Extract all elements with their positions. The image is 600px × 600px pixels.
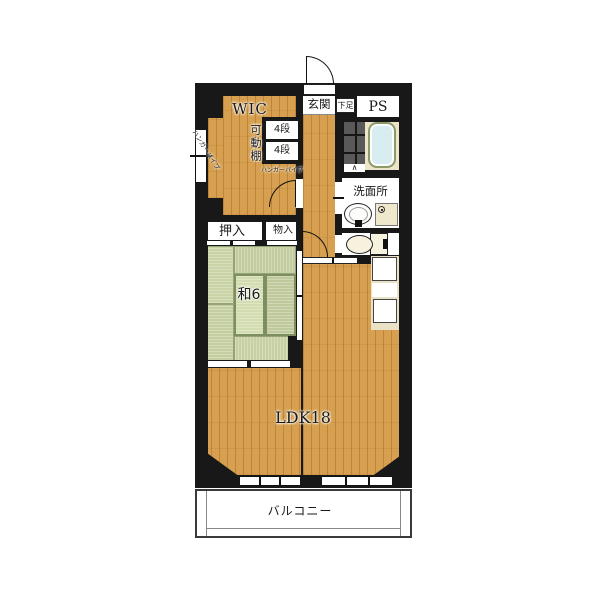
- balcony-label: バルコニー: [240, 503, 360, 519]
- basin-tap: [355, 220, 362, 227]
- bathtub: [368, 122, 396, 168]
- toilet-bowl: [346, 235, 373, 254]
- wall-corner-topleft: [195, 83, 223, 118]
- ps-label: PS: [357, 97, 399, 117]
- bath-folding-door: ∧: [344, 164, 365, 172]
- folding-door-icon: ∧: [352, 164, 358, 172]
- shoe-box-label: 下足: [336, 98, 355, 113]
- kitchen-unit-sink: [373, 299, 397, 323]
- shelf-tier-2: 4段: [266, 142, 298, 160]
- entrance-opening: [304, 84, 335, 95]
- genkan-label: 玄関: [303, 96, 335, 114]
- window-tick: [279, 477, 281, 485]
- pan-drain-dot: [381, 209, 383, 211]
- toilet-icon: [346, 233, 391, 256]
- tatami-room: [203, 246, 296, 362]
- oshiire-door: [207, 241, 230, 245]
- washing-machine-pan-icon: [375, 203, 398, 226]
- shelf-tier-2-label: 4段: [274, 146, 290, 156]
- balcony-rail-right: [400, 491, 401, 536]
- ldk-window-left: [240, 476, 300, 486]
- shelf-tier-1: 4段: [266, 121, 298, 139]
- ldk-label: LDK18: [270, 408, 336, 428]
- monoire-door: [267, 241, 297, 245]
- entrance-door-arc: [306, 56, 334, 84]
- wall-ps-bottom: [342, 117, 399, 122]
- toilet-handle: [383, 239, 388, 249]
- kitchen-unit-top: [372, 257, 397, 281]
- tatami-mat: [234, 246, 296, 274]
- tatami-mat: [234, 336, 296, 362]
- washitsu-ldk-slider-left: [208, 361, 247, 367]
- fusuma-sliding-door: [297, 251, 302, 340]
- ldk-window-right: [322, 476, 392, 486]
- door-tick: [297, 295, 302, 297]
- kitchen-counter: [371, 256, 399, 330]
- window-tick: [259, 477, 261, 485]
- oshiire-label: 押入: [205, 222, 259, 240]
- washitsu-label: 和6: [225, 286, 273, 304]
- hall-ldk-threshold: [303, 257, 357, 264]
- washbasin-icon: [344, 203, 372, 227]
- window-tick: [368, 477, 370, 485]
- shelf-unit-label: 可動棚: [248, 117, 263, 169]
- washroom-label: 洗面所: [342, 184, 399, 200]
- wic-door-opening: [296, 179, 303, 208]
- wic-label: WIC: [225, 99, 275, 119]
- balcony-rail-left: [206, 491, 207, 536]
- balcony-rail-bottom: [206, 528, 401, 529]
- kitchen-unit-mid: [372, 283, 397, 297]
- monoire-label: 物入: [264, 222, 302, 240]
- wall-wic-bottom: [203, 215, 302, 222]
- wall-right: [399, 83, 412, 488]
- washroom-sliding-door: [335, 182, 342, 214]
- tatami-mat: [234, 274, 265, 336]
- threshold-tick: [332, 258, 334, 263]
- tatami-mat: [265, 274, 296, 336]
- toilet-door-opening: [335, 235, 342, 253]
- washitsu-ldk-slider-right: [251, 361, 290, 367]
- shelf-tier-1-label: 4段: [274, 125, 290, 135]
- window-tick: [345, 477, 347, 485]
- hanger-pipe-label-bottom: ハンガーパイプ: [258, 166, 306, 176]
- wall-washitsu-corner: [288, 336, 303, 368]
- oshiire-door: [233, 241, 255, 245]
- floor-plan: 4段 4段 ∧: [0, 0, 600, 600]
